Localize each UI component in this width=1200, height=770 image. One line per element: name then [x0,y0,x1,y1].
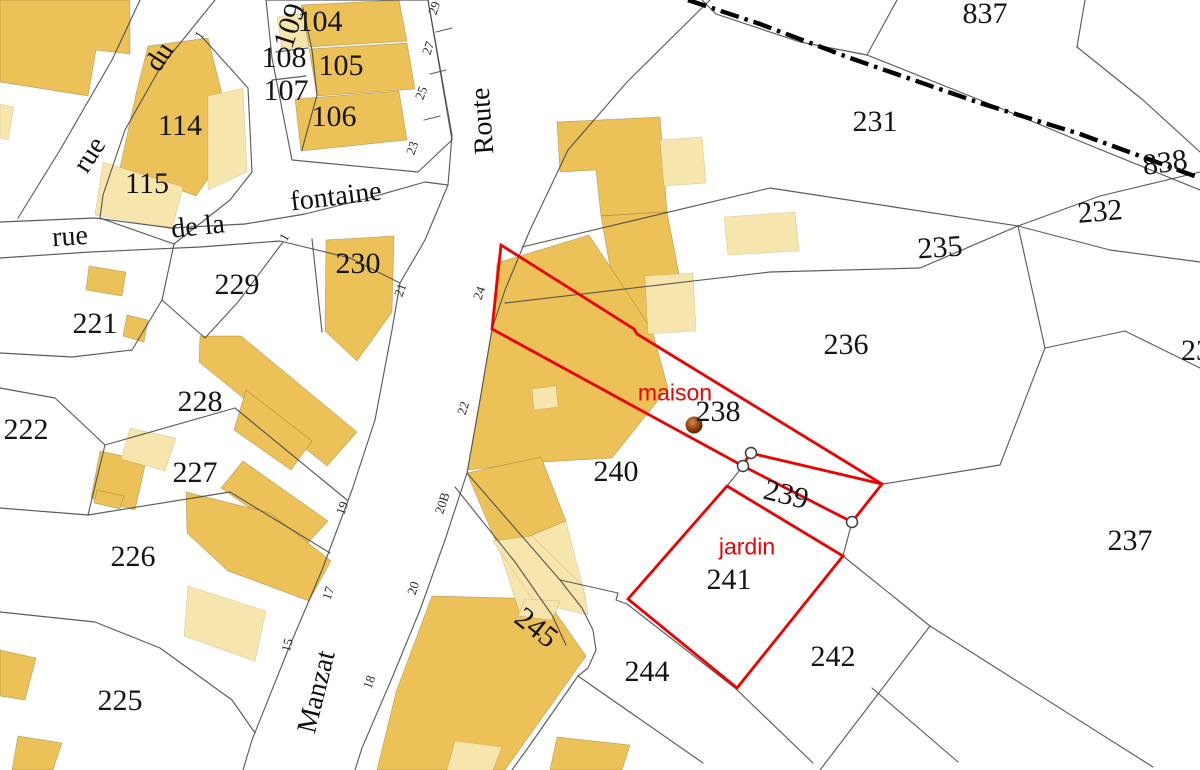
parcel-number-label: 107 [264,76,309,106]
parcel-number-label: 227 [173,458,218,488]
street-name-label: rue [69,132,112,177]
house-number-label: 19 [334,500,351,517]
house-number-label: 22 [455,400,471,416]
parcel-number-label: 23 [1181,336,1200,366]
parcel-number-label: 236 [824,330,869,360]
parcel-number-label: 241 [707,565,752,595]
parcel-number-label: 245 [509,602,563,653]
house-number-label: 27 [420,40,437,57]
parcel-number-label: 105 [319,51,364,81]
house-number-label: 24 [471,285,488,302]
parcel-number-label: 225 [98,686,143,716]
house-number-label: 20 [405,580,421,596]
house-number-label: 23 [404,140,421,157]
parcel-number-label: 114 [158,111,202,141]
parcel-number-label: 838 [1141,145,1190,181]
street-name-label: rue [51,222,89,252]
house-number-label: 20B [432,491,451,516]
house-number-label: 17 [320,585,336,601]
parcel-number-label: 230 [336,249,381,279]
house-number-label: 25 [413,85,430,102]
parcel-number-label: 244 [625,657,670,687]
map-labels: 1041051061071081091141152212222252262272… [0,0,1200,770]
street-name-label: fontaine [289,178,383,217]
parcel-number-label: 239 [761,475,812,515]
parcel-number-label: 242 [811,642,856,672]
parcel-number-label: 106 [312,102,357,132]
parcel-number-label: 235 [917,231,964,264]
parcel-number-label: 221 [73,309,118,339]
highlight-annotation-label: jardin [719,536,775,559]
house-number-label: 21 [392,282,409,299]
street-name-label: de la [170,210,226,243]
parcel-number-label: 115 [125,169,169,199]
parcel-number-label: 228 [178,387,223,417]
parcel-number-label: 226 [111,542,156,572]
parcel-number-label: 231 [853,107,898,137]
highlight-annotation-label: maison [638,382,712,405]
street-name-label: Route [467,87,500,156]
parcel-number-label: 229 [215,270,260,300]
parcel-number-label: 237 [1108,526,1153,556]
house-number-label: 18 [361,674,378,691]
parcel-number-label: 240 [594,457,639,487]
house-number-label: 1 [277,231,292,243]
street-name-label: Manzat [293,648,340,736]
parcel-number-label: 232 [1076,195,1123,229]
house-number-label: 1 [192,29,206,42]
parcel-number-label: 837 [963,0,1008,29]
house-number-label: 15 [279,637,295,653]
cadastral-map: 1041051061071081091141152212222252262272… [0,0,1200,770]
house-number-label: 29 [426,0,443,16]
parcel-number-label: 222 [4,415,49,445]
street-name-label: du [141,38,180,77]
